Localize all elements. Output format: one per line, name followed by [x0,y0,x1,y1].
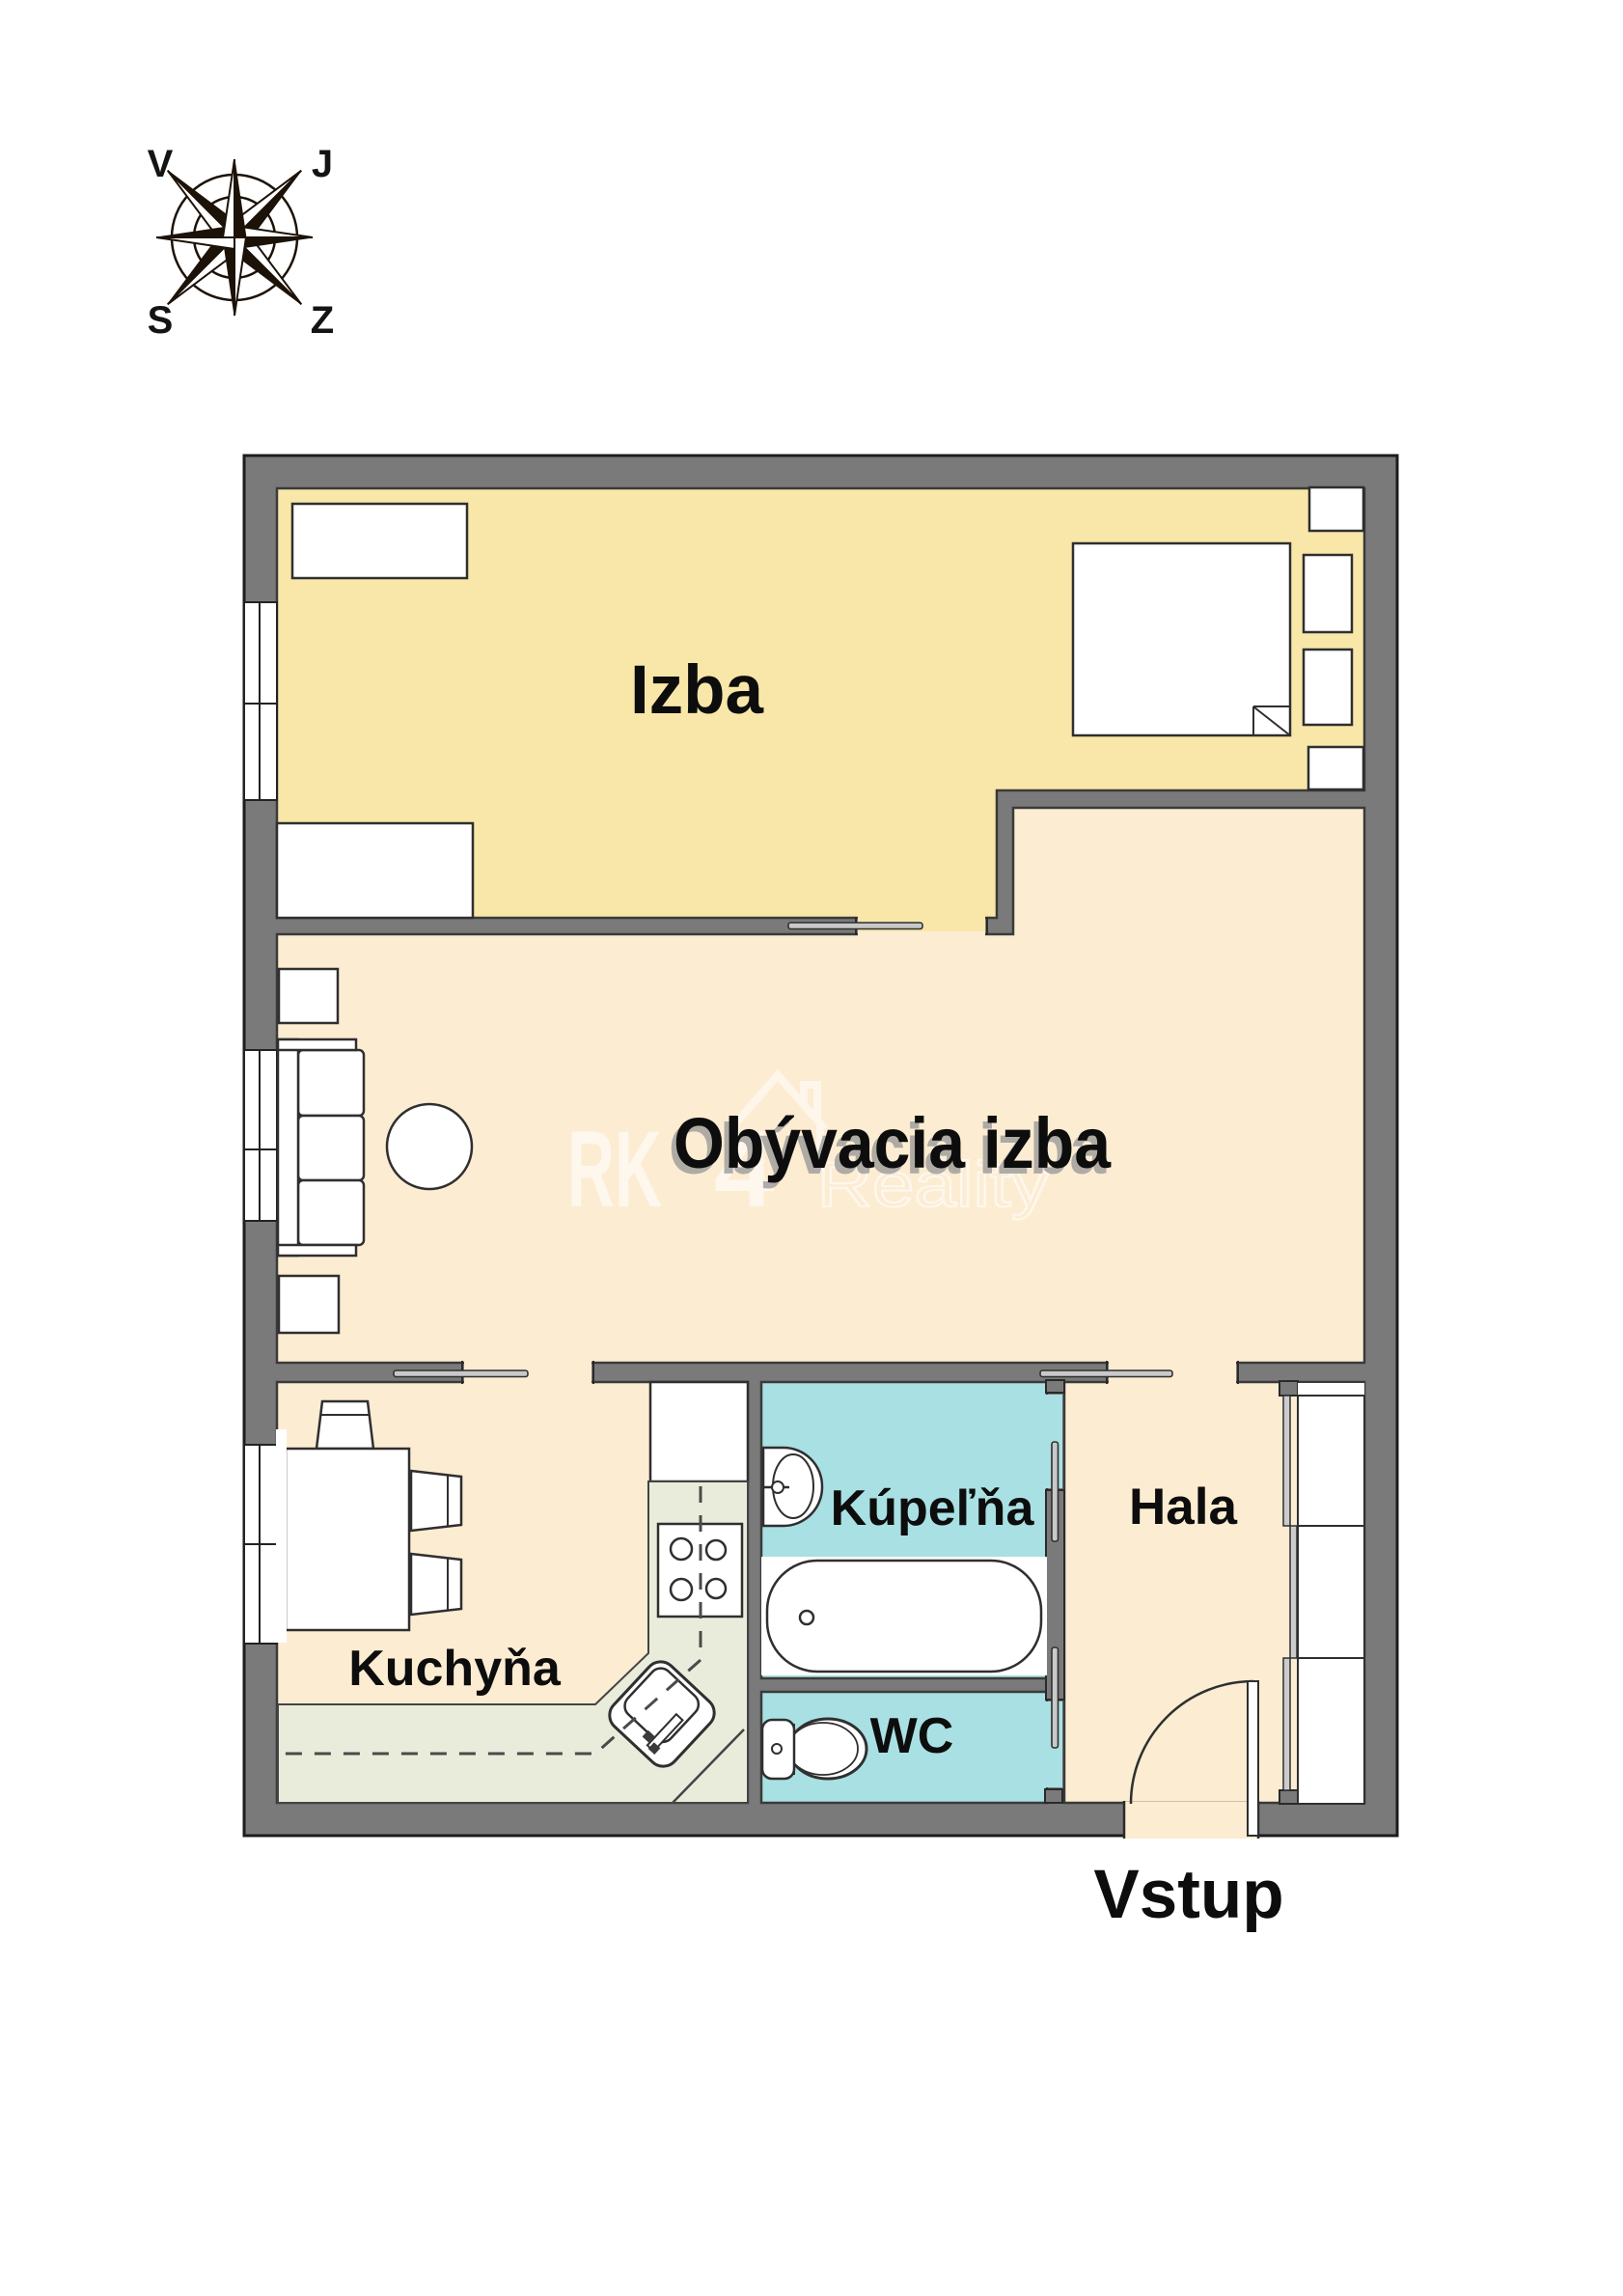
svg-text:RK: RK [567,1109,662,1230]
svg-text:Kúpeľňa: Kúpeľňa [831,1480,1035,1536]
svg-text:Izba: Izba [630,652,764,729]
svg-text:Hala: Hala [1129,1479,1237,1535]
svg-text:S: S [148,299,174,342]
svg-text:Obývacia izba: Obývacia izba [674,1103,1112,1183]
svg-text:J: J [312,143,333,185]
svg-text:Vstup: Vstup [1093,1857,1283,1933]
svg-text:V: V [148,143,174,185]
svg-text:Kuchyňa: Kuchyňa [348,1641,562,1697]
svg-text:Z: Z [311,299,334,342]
svg-text:WC: WC [870,1708,954,1764]
